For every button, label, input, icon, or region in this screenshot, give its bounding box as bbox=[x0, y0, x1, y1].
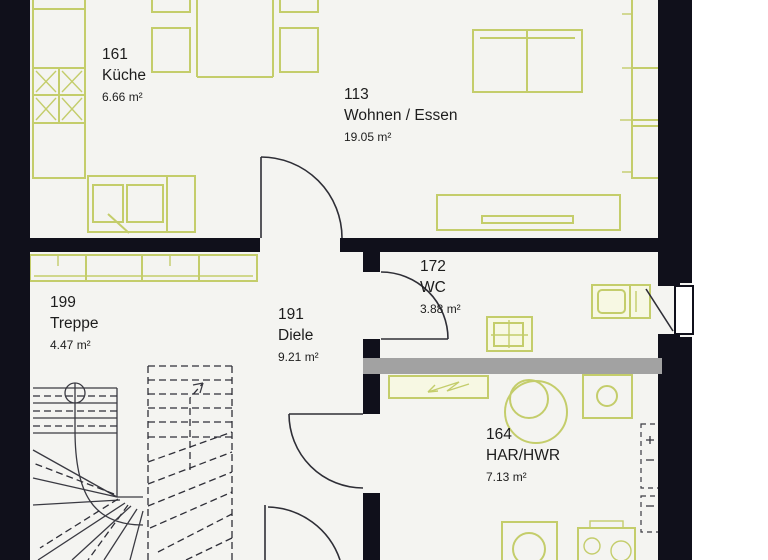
room-label-treppe: 199 Treppe 4.47 m² bbox=[50, 292, 99, 353]
washbasin bbox=[487, 317, 532, 351]
room-area: 7.13 m² bbox=[486, 470, 560, 485]
room-area: 19.05 m² bbox=[344, 130, 457, 145]
room-label-kueche: 161 Küche 6.66 m² bbox=[102, 44, 146, 105]
toilet bbox=[592, 285, 650, 318]
room-name: HAR/HWR bbox=[486, 445, 560, 466]
room-number: 191 bbox=[278, 304, 319, 325]
room-label-wc: 172 WC 3.88 m² bbox=[420, 256, 461, 317]
room-number: 199 bbox=[50, 292, 99, 313]
room-area: 9.21 m² bbox=[278, 350, 319, 365]
room-name: Küche bbox=[102, 65, 146, 86]
room-label-diele: 191 Diele 9.21 m² bbox=[278, 304, 319, 365]
room-number: 161 bbox=[102, 44, 146, 65]
room-number: 164 bbox=[486, 424, 560, 445]
room-area: 3.88 m² bbox=[420, 302, 461, 317]
room-name: Wohnen / Essen bbox=[344, 105, 457, 126]
room-name: Treppe bbox=[50, 313, 99, 334]
room-name: Diele bbox=[278, 325, 319, 346]
room-area: 6.66 m² bbox=[102, 90, 146, 105]
room-label-wohnen-essen: 113 Wohnen / Essen 19.05 m² bbox=[344, 84, 457, 145]
floor-plan: 161 Küche 6.66 m² 113 Wohnen / Essen 19.… bbox=[0, 0, 768, 560]
room-number: 113 bbox=[344, 84, 457, 105]
electrical-panel bbox=[389, 376, 488, 398]
room-label-har-hwr: 164 HAR/HWR 7.13 m² bbox=[486, 424, 560, 485]
room-number: 172 bbox=[420, 256, 461, 277]
room-name: WC bbox=[420, 277, 461, 298]
room-area: 4.47 m² bbox=[50, 338, 99, 353]
